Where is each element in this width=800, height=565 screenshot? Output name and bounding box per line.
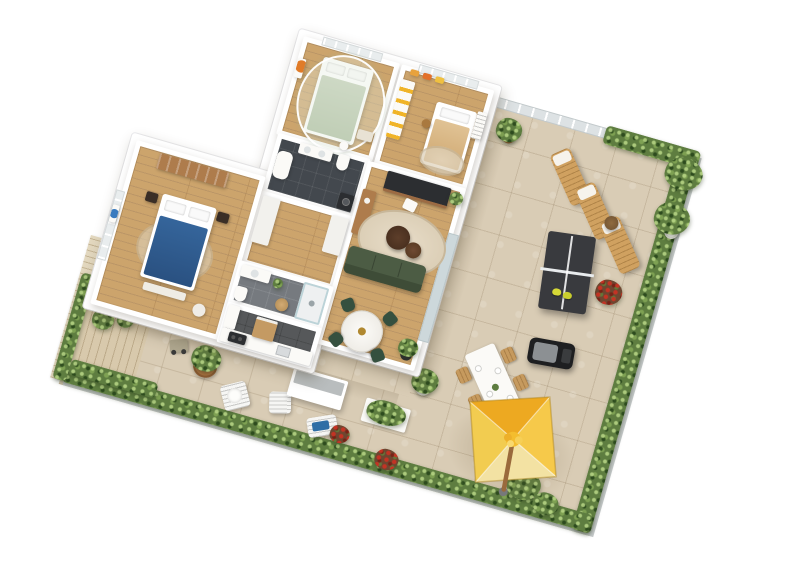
sofa-seam [371, 255, 376, 270]
scene-rotated [44, 0, 756, 565]
cooktop-dark [227, 331, 247, 346]
garden-cart [169, 339, 188, 353]
ping-pong-paddle-1 [552, 288, 562, 296]
sink-basin [303, 146, 312, 155]
washer-door [341, 197, 351, 207]
burner [238, 337, 243, 342]
table-decor [357, 326, 367, 336]
sink-basin [250, 269, 260, 279]
bbq-side-shelf [561, 348, 572, 363]
chair-cushion [225, 387, 243, 405]
burner [231, 335, 236, 340]
kitchen-sink [275, 345, 291, 358]
vase [363, 197, 370, 204]
ping-pong-paddle-2 [562, 291, 572, 299]
pillow [164, 199, 187, 215]
floorplan-render [0, 0, 800, 565]
sofa-seam [397, 263, 402, 278]
blue-towel [312, 420, 330, 432]
pillow [188, 206, 211, 222]
lounger-cushion [552, 150, 573, 167]
lounger-cushion [576, 184, 597, 201]
shower-drain [308, 300, 315, 307]
sink-basin [317, 150, 326, 159]
bbq-lid [532, 341, 559, 363]
